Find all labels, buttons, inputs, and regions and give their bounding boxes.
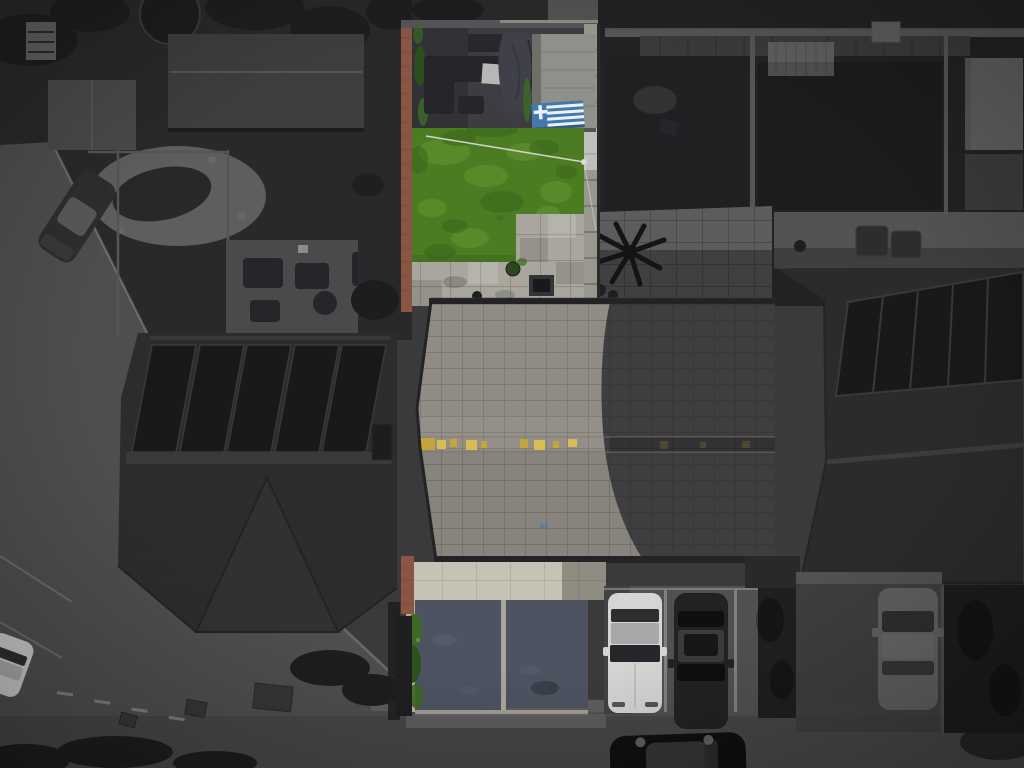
tarmac-speckle (462, 686, 478, 694)
lawn-patch (555, 165, 577, 179)
subject-house-roof (410, 298, 776, 563)
lichen-patch (481, 441, 487, 448)
top-eave (429, 298, 775, 304)
mirror (603, 647, 609, 656)
bay-line (734, 590, 737, 712)
gutter (150, 336, 390, 340)
tarmac-divider (501, 600, 506, 710)
white-car (603, 593, 667, 713)
tarmac-speckle (520, 665, 540, 675)
paver-variation (468, 262, 498, 284)
garden-equipment (633, 86, 677, 114)
greek-flag-table (531, 100, 585, 131)
shed-eave (168, 128, 364, 132)
manhole (253, 683, 293, 712)
ottoman (458, 96, 484, 114)
weeds (517, 258, 527, 266)
mirror (661, 647, 667, 656)
subject-driveway (388, 556, 606, 728)
front-wall-strip (796, 572, 942, 584)
car-windshield (610, 645, 660, 662)
corner-paving (965, 154, 1023, 210)
side-hedge (388, 602, 400, 720)
dark-car (668, 593, 734, 729)
garden-furniture (243, 258, 283, 288)
tree (352, 173, 384, 197)
brick-wall (401, 24, 412, 312)
border-plants (413, 24, 423, 44)
back-fence (605, 30, 1024, 37)
manhole (185, 699, 207, 717)
lawn-patch (540, 181, 572, 203)
weeds (523, 78, 531, 122)
stone (208, 156, 216, 164)
lichen-patch (450, 439, 457, 447)
scene-canvas (0, 0, 1024, 768)
tarmac-speckle (433, 634, 457, 646)
lichen-patch (520, 439, 528, 448)
weeds (496, 215, 504, 221)
hedge-texture (989, 664, 1021, 716)
corner-shed-roof (965, 58, 1023, 150)
rear-fence-lit (500, 20, 598, 23)
fence-line (941, 585, 944, 733)
lichen-patch (466, 440, 477, 450)
garden-furniture (295, 263, 329, 289)
tree (351, 280, 399, 320)
wheelie-bin (891, 231, 921, 258)
lawn-patch (464, 165, 508, 187)
wheelie-bin (856, 226, 888, 256)
roof-shadow (602, 300, 776, 562)
car-windshield (677, 664, 725, 681)
lawn-patch (480, 191, 524, 213)
front-pavement (406, 714, 606, 728)
headlight (612, 702, 625, 707)
brick-pillar (401, 556, 414, 614)
roof-window (372, 424, 392, 460)
plant-pot (794, 240, 806, 252)
rockery (90, 146, 266, 246)
patio-detail (298, 245, 308, 253)
tarmac-stain (531, 681, 559, 695)
palm-center (623, 245, 637, 259)
car-roof (611, 623, 659, 644)
shrub-highlight (416, 638, 420, 642)
paver-variation (556, 262, 584, 284)
stone (238, 212, 246, 220)
paver-variation (520, 238, 548, 262)
fence (750, 30, 755, 218)
mirror (728, 659, 734, 668)
fence (944, 30, 948, 214)
ladder (26, 22, 56, 60)
headlight (645, 702, 658, 707)
mirror (668, 659, 674, 668)
ridge-shadow (610, 437, 775, 452)
fence-top (605, 28, 1024, 30)
paver-variation (548, 214, 576, 238)
big-shed (168, 34, 364, 132)
gray-car (872, 588, 944, 710)
ridge (126, 452, 392, 464)
subject-garden (401, 20, 600, 316)
black-car (609, 732, 747, 768)
car-rear-window (882, 661, 934, 675)
line-pole (581, 159, 587, 165)
car-rear-window (611, 609, 659, 622)
hedge-texture (770, 660, 794, 700)
side-ground (745, 556, 800, 588)
dark-lawn (605, 58, 747, 214)
ac-unit (872, 22, 900, 42)
verge-bushes (57, 736, 173, 768)
solar-array (132, 345, 386, 452)
car-rear-window (678, 611, 724, 627)
lawn-patch (442, 219, 468, 233)
garden-furniture (250, 300, 280, 322)
lichen-patch (534, 440, 545, 450)
car-windshield (882, 611, 934, 632)
lichen-patch (437, 440, 446, 449)
paver-weathering (443, 276, 467, 288)
shed-roof (168, 34, 364, 132)
car-roof (882, 634, 934, 659)
lichen-patch (553, 441, 559, 448)
lichen-patch (568, 439, 577, 447)
sunroof (684, 634, 718, 656)
garden-table (313, 291, 337, 315)
parking-bays (603, 586, 758, 729)
hedge-texture (957, 600, 993, 660)
car-roof (645, 741, 708, 768)
fence-shadow (597, 24, 600, 316)
drain-inner (533, 279, 550, 292)
bay-line (604, 588, 758, 590)
aerial-photo (0, 0, 1024, 768)
roof-surface (410, 300, 776, 562)
paving-shade (562, 562, 606, 600)
mirror (872, 628, 879, 637)
hedge-texture (756, 598, 784, 642)
lawn-patch (417, 199, 447, 217)
bottom-eave (434, 556, 775, 563)
corner-shed-edge (965, 58, 971, 150)
tarmac-panel (415, 600, 501, 712)
storage-box (468, 34, 502, 52)
small-shed (48, 80, 136, 150)
dark-lawn (758, 62, 942, 210)
